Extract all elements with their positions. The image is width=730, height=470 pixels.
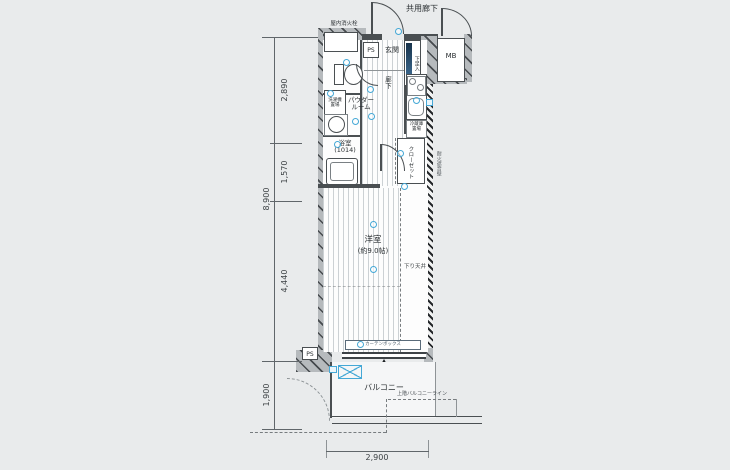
room-joint-line — [323, 286, 400, 287]
ps-top-label: PS — [367, 47, 374, 54]
mb-door-leaf — [441, 8, 443, 36]
wall-hall-left — [360, 40, 362, 188]
dim-tick-1 — [262, 37, 318, 38]
room-floor — [323, 188, 400, 352]
washer-label-2: 置場 — [331, 103, 340, 108]
hallway-label: 廊下 — [383, 71, 390, 93]
entrance-door-leaf — [371, 2, 373, 34]
dim-ext-bl — [326, 440, 327, 458]
fire-sound-wall-label: 耐火遮音壁 — [435, 144, 441, 182]
fixture-symbol — [352, 118, 359, 125]
dim-2900: 2,900 — [347, 453, 407, 462]
dim-tick-2 — [270, 143, 302, 144]
meter-box-label: MB — [439, 52, 463, 60]
fixture-symbol — [334, 141, 341, 148]
mb-door-arc — [442, 8, 472, 36]
basin-bowl — [328, 116, 345, 133]
pipe-space-bottom: PS — [302, 347, 318, 360]
western-room-label-2: (約9.0帖) — [344, 247, 402, 255]
fire-hydrant-label: 屋内消火栓 — [321, 21, 368, 27]
closet-label: クローゼット — [407, 142, 413, 182]
entrance-label: 玄関 — [380, 46, 404, 54]
powder-room-label-2: ルーム — [351, 103, 370, 111]
dim-4440: 4,440 — [279, 261, 289, 301]
fixture-symbol — [370, 266, 377, 273]
stove-burner-1 — [409, 78, 416, 85]
fixture-symbol — [327, 90, 334, 97]
upper-balcony-line-h — [388, 399, 456, 400]
bathtub-inner — [330, 162, 354, 181]
fixture-symbol — [401, 183, 408, 190]
balcony-escape-arc — [287, 378, 330, 421]
floor-plan: 共用廊下 屋内消火栓 PS 玄関 下足入 MB 洗濯機 置場 パウダー ルーム … — [0, 0, 730, 470]
common-corridor-label: 共用廊下 — [398, 4, 446, 13]
upper-balcony-line-v — [386, 399, 387, 433]
balcony-railing-1 — [332, 416, 482, 417]
balcony-railing-2 — [332, 423, 482, 424]
dim-tick-5 — [262, 429, 302, 430]
fixture-symbol — [370, 221, 377, 228]
dim-1900: 1,900 — [261, 375, 271, 415]
dim-2890: 2,890 — [279, 70, 289, 110]
fixture-symbol — [367, 86, 374, 93]
window — [342, 352, 426, 359]
dim-ext-br — [428, 440, 429, 458]
lowered-ceiling-label: 下り天井 — [402, 264, 428, 270]
upper-balcony-line-label: 上階バルコニーライン — [388, 392, 456, 398]
wall-mb-right — [464, 34, 472, 82]
evacuation-hatch — [338, 365, 362, 379]
dim-8900: 8,900 — [261, 179, 271, 219]
fixture-symbol — [368, 113, 375, 120]
toilet-tank — [334, 64, 344, 85]
room-door-leaf — [380, 144, 382, 171]
fixture-symbol — [343, 59, 350, 66]
pipe-space-top: PS — [363, 42, 379, 58]
fixture-symbol — [413, 97, 420, 104]
stove-burner-2 — [417, 84, 424, 91]
fixture-symbol — [426, 99, 433, 106]
balcony-ext-line — [456, 399, 457, 417]
fire-hydrant-box — [324, 32, 358, 52]
fridge-label: 冷蔵庫 置場 — [406, 122, 427, 132]
fixture-symbol — [329, 366, 337, 373]
balcony-right-line — [435, 362, 436, 416]
fridge-label-2: 置場 — [412, 127, 421, 132]
ps-bottom-label: PS — [306, 351, 313, 358]
fixture-symbol — [357, 341, 364, 348]
dim-line-bottom — [326, 451, 429, 452]
dim-1570: 1,570 — [279, 152, 289, 192]
powder-room-label: パウダー ルーム — [345, 97, 377, 112]
dim-line-left — [274, 37, 275, 429]
western-room-label-1: 洋室 — [350, 236, 396, 246]
dim-tick-4 — [262, 361, 302, 362]
dim-tick-3 — [270, 201, 302, 202]
fixture-symbol — [397, 150, 404, 157]
upper-balcony-line-h2 — [250, 432, 386, 433]
fixture-symbol — [395, 28, 402, 35]
washer-label: 洗濯機 置場 — [324, 98, 346, 108]
